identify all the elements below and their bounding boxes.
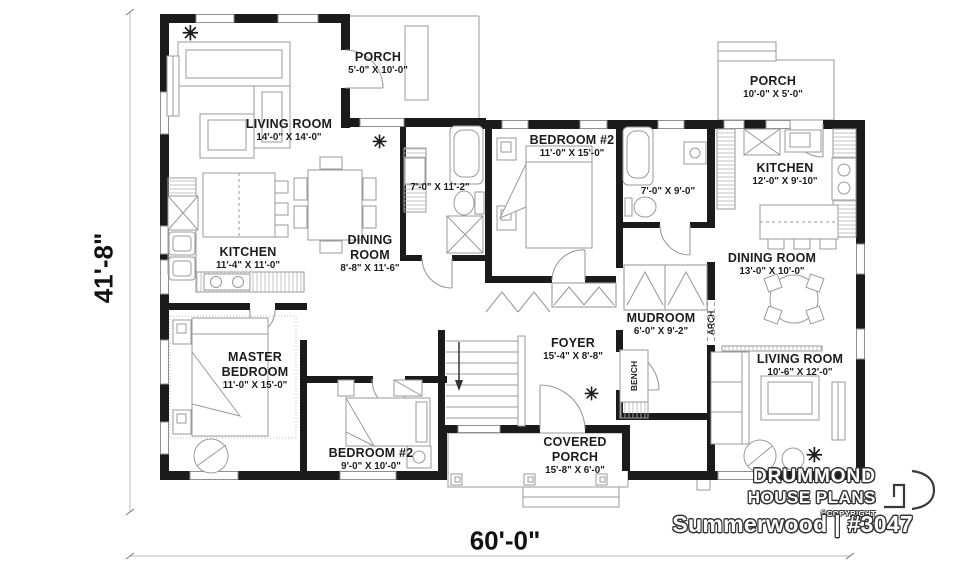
room-label-porch-right: PORCH 10'-0" X 5'-0"	[743, 74, 803, 100]
room-size: 7'-0" X 9'-0"	[641, 186, 695, 198]
room-name: FOYER	[543, 336, 603, 351]
master-bedroom-furniture	[170, 316, 296, 473]
room-size: 10'-0" X 5'-0"	[743, 89, 803, 101]
brand-line1: DRUMMOND	[700, 466, 876, 488]
room-size: 14'-0" X 14'-0"	[246, 132, 332, 144]
width-dimension: 60'-0"	[470, 526, 541, 557]
closet-doors	[486, 265, 707, 312]
room-label-foyer: FOYER 15'-4" X 8'-8"	[543, 336, 603, 362]
room-size: 15'-8" X 6'-0"	[543, 465, 606, 477]
kitchen-left-furniture	[168, 173, 304, 292]
arch-label: ARCH	[706, 311, 716, 336]
room-name: PORCH	[348, 50, 408, 65]
room-label-kitchen-left: KITCHEN 11'-4" X 11'-0"	[216, 245, 280, 271]
room-label-dining-right: DINING ROOM 13'-0" X 10'-0"	[728, 251, 816, 277]
room-label-living-left: LIVING ROOM 14'-0" X 14'-0"	[246, 117, 332, 143]
room-label-dining-left: DINING ROOM 8'-8" X 11'-6"	[340, 233, 399, 274]
room-size: 6'-0" X 9'-2"	[627, 326, 696, 338]
room-name: LIVING ROOM	[757, 352, 843, 367]
room-name: KITCHEN	[752, 161, 817, 176]
room-size: 8'-8" X 11'-6"	[340, 263, 399, 275]
bathroom-right-fixtures	[623, 127, 735, 217]
room-name: KITCHEN	[216, 245, 280, 260]
room-name: PORCH	[743, 74, 803, 89]
room-label-bath-main: 7'-0" X 11'-2"	[410, 182, 469, 194]
ceiling-fan-icon: ✳	[584, 384, 599, 404]
staircase	[446, 336, 525, 426]
room-size: 12'-0" X 9'-10"	[752, 176, 817, 188]
brand-line2: HOUSE PLANS	[700, 488, 876, 508]
room-size: 15'-4" X 8'-8"	[543, 351, 603, 363]
room-size: 11'-0" X 15'-0"	[222, 380, 289, 392]
room-name: BEDROOM	[222, 365, 289, 380]
room-label-bedroom2-top: BEDROOM #2 11'-0" X 15'-0"	[530, 133, 615, 159]
room-label-covered-porch: COVERED PORCH 15'-8" X 6'-0"	[543, 435, 606, 476]
ceiling-fan-icon: ✳	[182, 23, 199, 45]
room-size: 7'-0" X 11'-2"	[410, 182, 469, 194]
room-name: BEDROOM #2	[530, 133, 615, 148]
room-name: DINING	[340, 233, 399, 248]
room-size: 11'-0" X 15'-0"	[530, 148, 615, 160]
room-name: LIVING ROOM	[246, 117, 332, 132]
room-label-kitchen-right: KITCHEN 12'-0" X 9'-10"	[752, 161, 817, 187]
room-size: 10'-6" X 12'-0"	[757, 367, 843, 379]
kitchen-right-furniture	[744, 129, 856, 249]
room-size: 13'-0" X 10'-0"	[728, 266, 816, 278]
room-label-bath-right: 7'-0" X 9'-0"	[641, 186, 695, 198]
room-name: BEDROOM #2	[329, 446, 414, 461]
room-size: 9'-0" X 10'-0"	[329, 461, 414, 473]
room-size: 11'-4" X 11'-0"	[216, 260, 280, 272]
room-size: 5'-0" X 10'-0"	[348, 65, 408, 77]
floor-plan-page: BENCH ARCH ✳ ✳ ✳ ✳ LIVING ROOM 14'-0" X …	[0, 0, 960, 569]
dining-right-furniture	[764, 274, 824, 324]
bench-label: BENCH	[629, 361, 639, 391]
room-name: MASTER	[222, 350, 289, 365]
plan-title: Summerwood | #3047	[650, 511, 913, 538]
room-label-porch-top: PORCH 5'-0" X 10'-0"	[348, 50, 408, 76]
room-name: MUDROOM	[627, 311, 696, 326]
room-name: COVERED	[543, 435, 606, 450]
room-name: PORCH	[543, 450, 606, 465]
room-label-bedroom2-bottom: BEDROOM #2 9'-0" X 10'-0"	[329, 446, 414, 472]
room-name: ROOM	[340, 248, 399, 263]
room-label-mudroom: MUDROOM 6'-0" X 9'-2"	[627, 311, 696, 337]
room-label-living-right: LIVING ROOM 10'-6" X 12'-0"	[757, 352, 843, 378]
height-dimension: 41'-8"	[89, 233, 120, 304]
room-label-master-bedroom: MASTER BEDROOM 11'-0" X 15'-0"	[222, 350, 289, 391]
room-name: DINING ROOM	[728, 251, 816, 266]
drummond-d-mark	[880, 467, 938, 515]
ceiling-fan-icon: ✳	[372, 132, 387, 152]
ceiling-fan-icon: ✳	[806, 445, 823, 467]
